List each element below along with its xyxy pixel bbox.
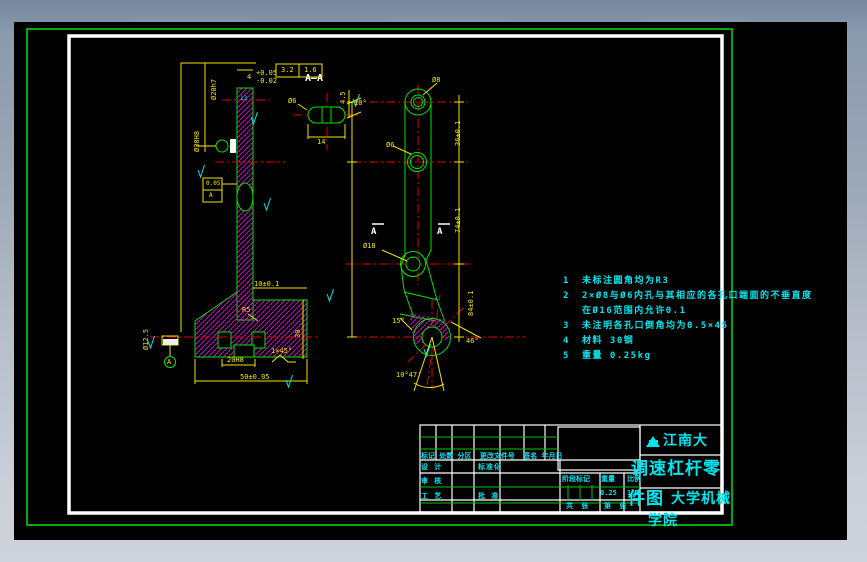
cut-arrow-right-label: A — [437, 228, 442, 237]
dim-d18: Ø18 — [363, 243, 376, 250]
check-label: 审 核 — [421, 478, 442, 485]
drawing-title-line2: 件图 — [628, 491, 664, 508]
dim-pad: 10±0.1 — [254, 281, 279, 288]
note-text: 未标注圆角均为R3 — [582, 277, 669, 286]
dim-angle-1047: 10°47′ — [396, 372, 421, 379]
note-number: 4 — [563, 337, 568, 346]
school-name-line2: 大学机械 — [671, 492, 731, 506]
school-name-line3: 学院 — [648, 514, 678, 528]
datum-a-label: A — [167, 359, 171, 366]
dim-dia-left: Ø12.5 — [143, 329, 150, 350]
dim-dia-mid: Ø30H8 — [194, 131, 201, 152]
dim-rough-a: 3.2 — [281, 67, 294, 74]
cad-app-window: { "colors":{"outline_green":"#00e400","d… — [0, 0, 867, 562]
dim-r5: R5 — [242, 307, 250, 314]
university-logo-icon — [646, 436, 660, 447]
dim-aa-width: 14 — [317, 139, 325, 146]
note-text: 在Ø16范围内允许0.1 — [582, 307, 687, 316]
design-label: 设 计 — [421, 464, 442, 471]
dim-base-width: 50±0.05 — [240, 374, 270, 381]
dim-84: 84±0.1 — [468, 291, 475, 316]
dim-flange-tol-dn: -0.02 — [256, 78, 277, 85]
page-count-label: 第 张 — [604, 503, 626, 510]
note-text: 2×Ø8与Ø6内孔与其相应的各孔口端面的不垂直度 — [582, 292, 813, 301]
cut-arrow-left-label: A — [371, 228, 376, 237]
sheet-count-label: 共 张 — [566, 503, 588, 510]
roughness-value: 13 — [240, 96, 247, 102]
gdt-value: 0.05 — [206, 181, 220, 187]
dim-rough-b: 1.6 — [304, 67, 317, 74]
drawing-title-line1: 调速杠杆零 — [631, 461, 721, 478]
note-text: 未注明各孔口倒角均为0.5×45 — [582, 322, 729, 331]
right-view — [345, 83, 525, 391]
weight-value: 0.25 — [600, 490, 617, 497]
dim-angle-46: 46° — [466, 338, 479, 345]
dim-slot: 20H8 — [227, 357, 244, 364]
revision-header: 标记 处数 分区 更改文件号 签名 年月日 — [421, 453, 563, 460]
note-number: 1 — [563, 277, 568, 286]
dim-flange-width: 4 — [247, 74, 251, 81]
stage-mark-label: 阶段标记 — [562, 476, 590, 483]
process-label: 工 艺 — [421, 493, 442, 500]
school-name-line1: 江南大 — [663, 434, 708, 448]
note-text: 材料 30钢 — [582, 337, 634, 346]
dim-aa-height: 4.5 — [340, 91, 347, 104]
dim-d8: Ø8 — [432, 77, 440, 84]
dim-74: 74±0.1 — [455, 208, 462, 233]
dim-aa-dia: Ø6 — [288, 98, 296, 105]
dim-dia-top: Ø20h7 — [211, 79, 218, 100]
standardization-label: 标准化 — [478, 464, 502, 471]
weight-label: 重量 — [601, 476, 615, 483]
section-label: A—A — [305, 74, 323, 84]
dim-aa-angle: 10° — [354, 100, 367, 107]
dim-d6: Ø6 — [386, 142, 394, 149]
note-number: 5 — [563, 352, 568, 361]
note-number: 2 — [563, 292, 568, 301]
note-number: 3 — [563, 322, 568, 331]
dim-chamfer: 1×45° — [271, 348, 292, 355]
note-text: 重量 0.25kg — [582, 352, 651, 361]
dim-base-height: 30 — [295, 330, 302, 338]
dim-flange-tol-up: +0.05 — [256, 70, 277, 77]
approve-label: 批 准 — [478, 493, 499, 500]
dim-36: 36±0.1 — [455, 121, 462, 146]
dim-angle-15: 15° — [392, 318, 405, 325]
gdt-datum-ref: A — [209, 193, 213, 199]
